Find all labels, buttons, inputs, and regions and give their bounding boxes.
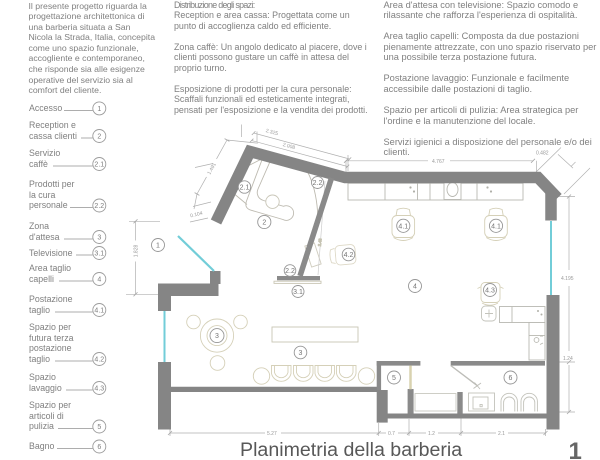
svg-text:4.2: 4.2 [344, 252, 354, 259]
svg-text:2.2: 2.2 [94, 203, 104, 210]
svg-text:2.008: 2.008 [282, 142, 296, 151]
svg-text:1: 1 [97, 106, 101, 113]
svg-text:3: 3 [97, 235, 101, 242]
svg-text:4.195: 4.195 [561, 276, 574, 282]
svg-text:2.325: 2.325 [265, 128, 279, 137]
svg-text:4.2: 4.2 [94, 357, 104, 364]
svg-text:4: 4 [413, 284, 417, 291]
svg-text:6: 6 [97, 444, 101, 451]
svg-text:2.2: 2.2 [285, 268, 295, 275]
svg-text:2.1: 2.1 [498, 431, 505, 437]
svg-text:4.1: 4.1 [398, 223, 408, 230]
svg-text:1.24: 1.24 [563, 356, 573, 362]
svg-text:2.43: 2.43 [317, 237, 323, 246]
svg-text:6: 6 [509, 375, 513, 382]
svg-text:4.3: 4.3 [94, 386, 104, 393]
svg-text:2.1: 2.1 [94, 162, 104, 169]
svg-text:1.491: 1.491 [207, 162, 218, 176]
svg-text:2.1: 2.1 [240, 185, 250, 192]
svg-text:3.1: 3.1 [94, 251, 104, 258]
svg-text:2: 2 [262, 220, 266, 227]
svg-text:4.1: 4.1 [94, 308, 104, 315]
svg-text:3: 3 [299, 350, 303, 357]
svg-text:0.482: 0.482 [536, 151, 549, 157]
svg-text:5: 5 [392, 375, 396, 382]
svg-text:0.104: 0.104 [190, 210, 204, 219]
svg-text:4.767: 4.767 [432, 159, 445, 165]
svg-text:3.1: 3.1 [293, 289, 303, 296]
svg-text:4: 4 [97, 277, 101, 284]
svg-text:1.2: 1.2 [428, 431, 435, 437]
svg-text:1.828: 1.828 [134, 245, 140, 258]
svg-text:2: 2 [97, 134, 101, 141]
svg-text:3: 3 [215, 333, 219, 340]
svg-text:5.27: 5.27 [267, 431, 277, 437]
svg-text:5: 5 [97, 424, 101, 431]
svg-text:4.3: 4.3 [485, 288, 495, 295]
svg-text:4.1: 4.1 [491, 223, 501, 230]
svg-text:2.2: 2.2 [313, 180, 323, 187]
svg-text:1: 1 [156, 243, 160, 250]
svg-text:0.7: 0.7 [388, 431, 395, 437]
